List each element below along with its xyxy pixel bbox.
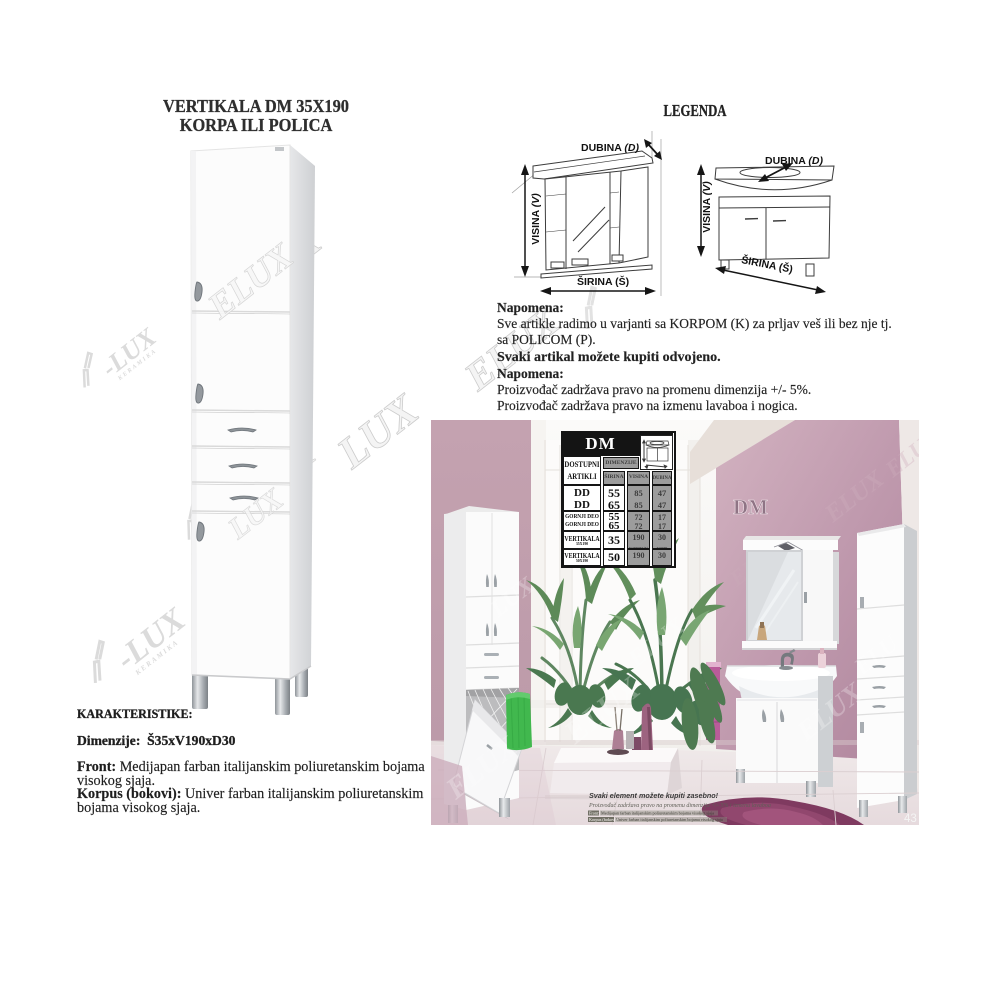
svg-text:Korpus (bokovi):: Korpus (bokovi): xyxy=(589,817,618,822)
svg-text:Univer farban italijanskim pol: Univer farban italijanskim poliuretanski… xyxy=(616,817,723,822)
svg-text:Front:: Front: xyxy=(589,811,599,816)
svg-text:43: 43 xyxy=(904,813,917,825)
svg-text:Medijapan farban italijanskim: Medijapan farban italijanskim poliuretan… xyxy=(601,811,714,816)
svg-text:Proizvođač zadržava pravo na p: Proizvođač zadržava pravo na promenu dim… xyxy=(588,803,771,809)
svg-text:DM: DM xyxy=(733,495,768,519)
svg-text:LUX: LUX xyxy=(327,384,429,478)
svg-text:Svaki element možete kupiti za: Svaki element možete kupiti zasebno! xyxy=(589,791,719,800)
